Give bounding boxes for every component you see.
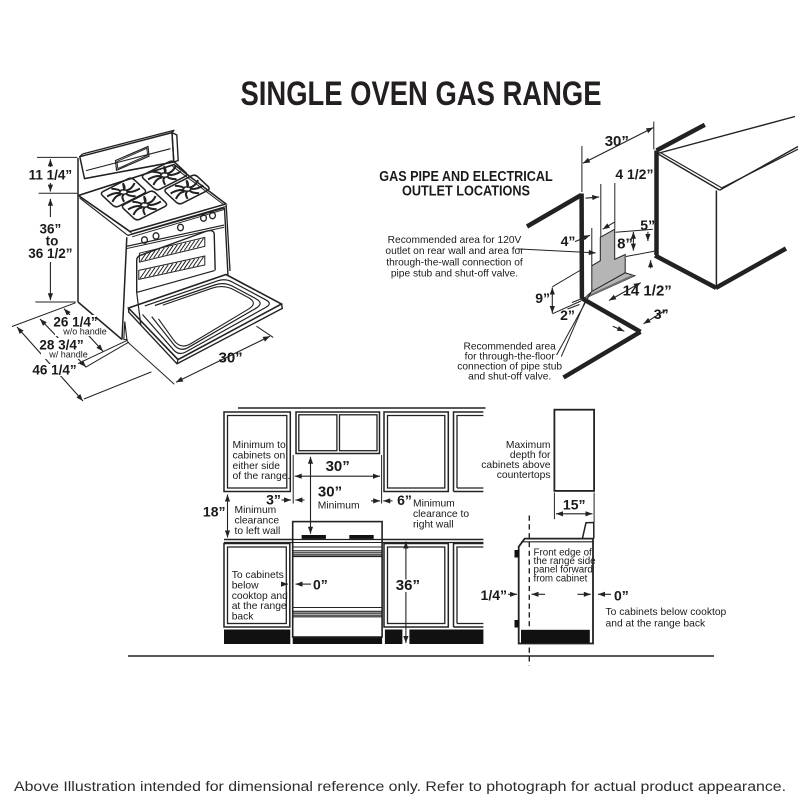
svg-text:30”: 30” <box>326 458 350 475</box>
svg-text:Minimum: Minimum <box>413 499 455 510</box>
svg-text:14 1/2”: 14 1/2” <box>623 282 672 299</box>
svg-text:0”: 0” <box>614 588 629 604</box>
svg-text:8”: 8” <box>617 235 633 252</box>
svg-text:To cabinets below cooktop: To cabinets below cooktop <box>606 607 727 618</box>
svg-text:11 1/4”: 11 1/4” <box>29 168 73 183</box>
svg-text:30”: 30” <box>318 484 342 501</box>
svg-text:OUTLET LOCATIONS: OUTLET LOCATIONS <box>402 184 530 200</box>
svg-text:and at the range back: and at the range back <box>606 619 706 630</box>
svg-text:Minimum to: Minimum to <box>233 440 286 451</box>
svg-text:outlet on rear wall and area f: outlet on rear wall and area for <box>385 246 524 257</box>
svg-text:Minimum: Minimum <box>318 500 360 511</box>
svg-text:1/4”: 1/4” <box>481 587 507 603</box>
svg-text:4”: 4” <box>561 233 576 249</box>
svg-text:Above Illustration intended fo: Above Illustration intended for dimensio… <box>14 779 786 795</box>
svg-text:6”: 6” <box>397 492 412 508</box>
svg-text:3”: 3” <box>654 306 669 322</box>
svg-text:to left wall: to left wall <box>235 526 281 537</box>
svg-text:from cabinet: from cabinet <box>534 573 588 584</box>
svg-text:30”: 30” <box>605 133 629 150</box>
svg-text:w/o handle: w/o handle <box>62 327 107 337</box>
svg-text:below: below <box>232 580 259 591</box>
svg-text:and shut-off valve.: and shut-off valve. <box>468 372 551 383</box>
svg-text:countertops: countertops <box>497 470 551 481</box>
svg-text:back: back <box>232 612 255 623</box>
svg-text:30”: 30” <box>219 349 243 366</box>
svg-text:18”: 18” <box>203 504 226 520</box>
svg-text:through-the-wall connection of: through-the-wall connection of <box>386 257 523 268</box>
svg-text:Recommended area for 120V: Recommended area for 120V <box>388 235 522 246</box>
svg-text:w/ handle: w/ handle <box>48 350 88 360</box>
svg-text:cooktop and: cooktop and <box>232 591 288 602</box>
svg-text:36 1/2”: 36 1/2” <box>28 246 72 261</box>
svg-text:SINGLE OVEN GAS RANGE: SINGLE OVEN GAS RANGE <box>241 75 602 113</box>
svg-text:To cabinets: To cabinets <box>232 570 284 581</box>
svg-text:clearance: clearance <box>235 516 280 527</box>
svg-text:at the range: at the range <box>232 601 287 612</box>
svg-text:0”: 0” <box>313 577 328 593</box>
svg-text:either side: either side <box>233 461 281 472</box>
svg-text:pipe stub and shut-off valve.: pipe stub and shut-off valve. <box>391 269 518 280</box>
svg-text:36”: 36” <box>396 577 420 594</box>
svg-text:of the range.: of the range. <box>233 471 291 482</box>
svg-text:right wall: right wall <box>413 520 454 531</box>
svg-text:Minimum: Minimum <box>235 505 277 516</box>
svg-text:15”: 15” <box>563 496 586 512</box>
svg-text:2”: 2” <box>560 307 575 323</box>
svg-text:clearance to: clearance to <box>413 509 469 520</box>
svg-text:9”: 9” <box>535 290 550 306</box>
svg-text:4 1/2”: 4 1/2” <box>615 166 653 182</box>
svg-text:cabinets on: cabinets on <box>233 450 286 461</box>
svg-text:46 1/4”: 46 1/4” <box>32 363 76 378</box>
